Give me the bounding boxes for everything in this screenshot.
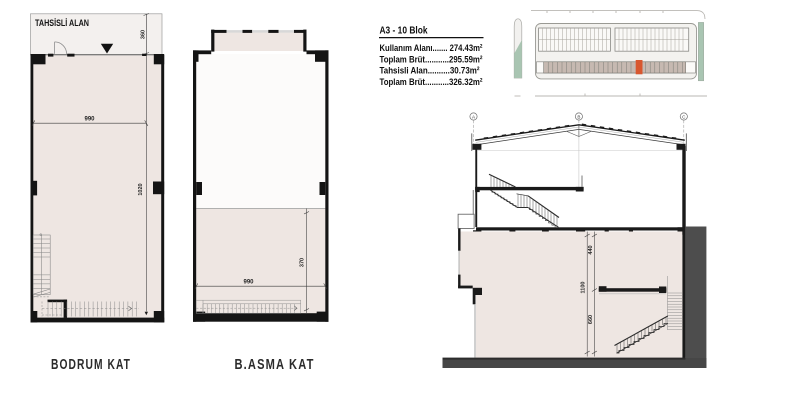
svg-text:1100: 1100 [581, 282, 587, 294]
svg-text:Tahsisli Alan..........30.73m²: Tahsisli Alan..........30.73m² [380, 66, 480, 76]
svg-text:B: B [577, 114, 580, 119]
svg-text:Toplam Brüt...........295.59m²: Toplam Brüt...........295.59m² [380, 54, 483, 64]
svg-text:1020: 1020 [138, 183, 144, 195]
svg-text:370: 370 [300, 258, 306, 267]
svg-text:Toplam Brüt...........326.32m²: Toplam Brüt...........326.32m² [380, 77, 483, 87]
svg-text:TAHSİSLİ ALAN: TAHSİSLİ ALAN [35, 18, 89, 28]
svg-text:440: 440 [588, 245, 594, 254]
svg-text:A3 - 10 Blok: A3 - 10 Blok [380, 25, 428, 37]
svg-text:990: 990 [84, 117, 95, 123]
svg-text:360: 360 [141, 30, 147, 39]
svg-text:B.ASMA KAT: B.ASMA KAT [235, 357, 315, 373]
svg-text:990: 990 [243, 280, 254, 286]
svg-text:BODRUM KAT: BODRUM KAT [51, 357, 131, 373]
svg-text:Kullanım Alanı....... 274.43m²: Kullanım Alanı....... 274.43m² [380, 43, 483, 53]
svg-text:660: 660 [588, 315, 594, 324]
